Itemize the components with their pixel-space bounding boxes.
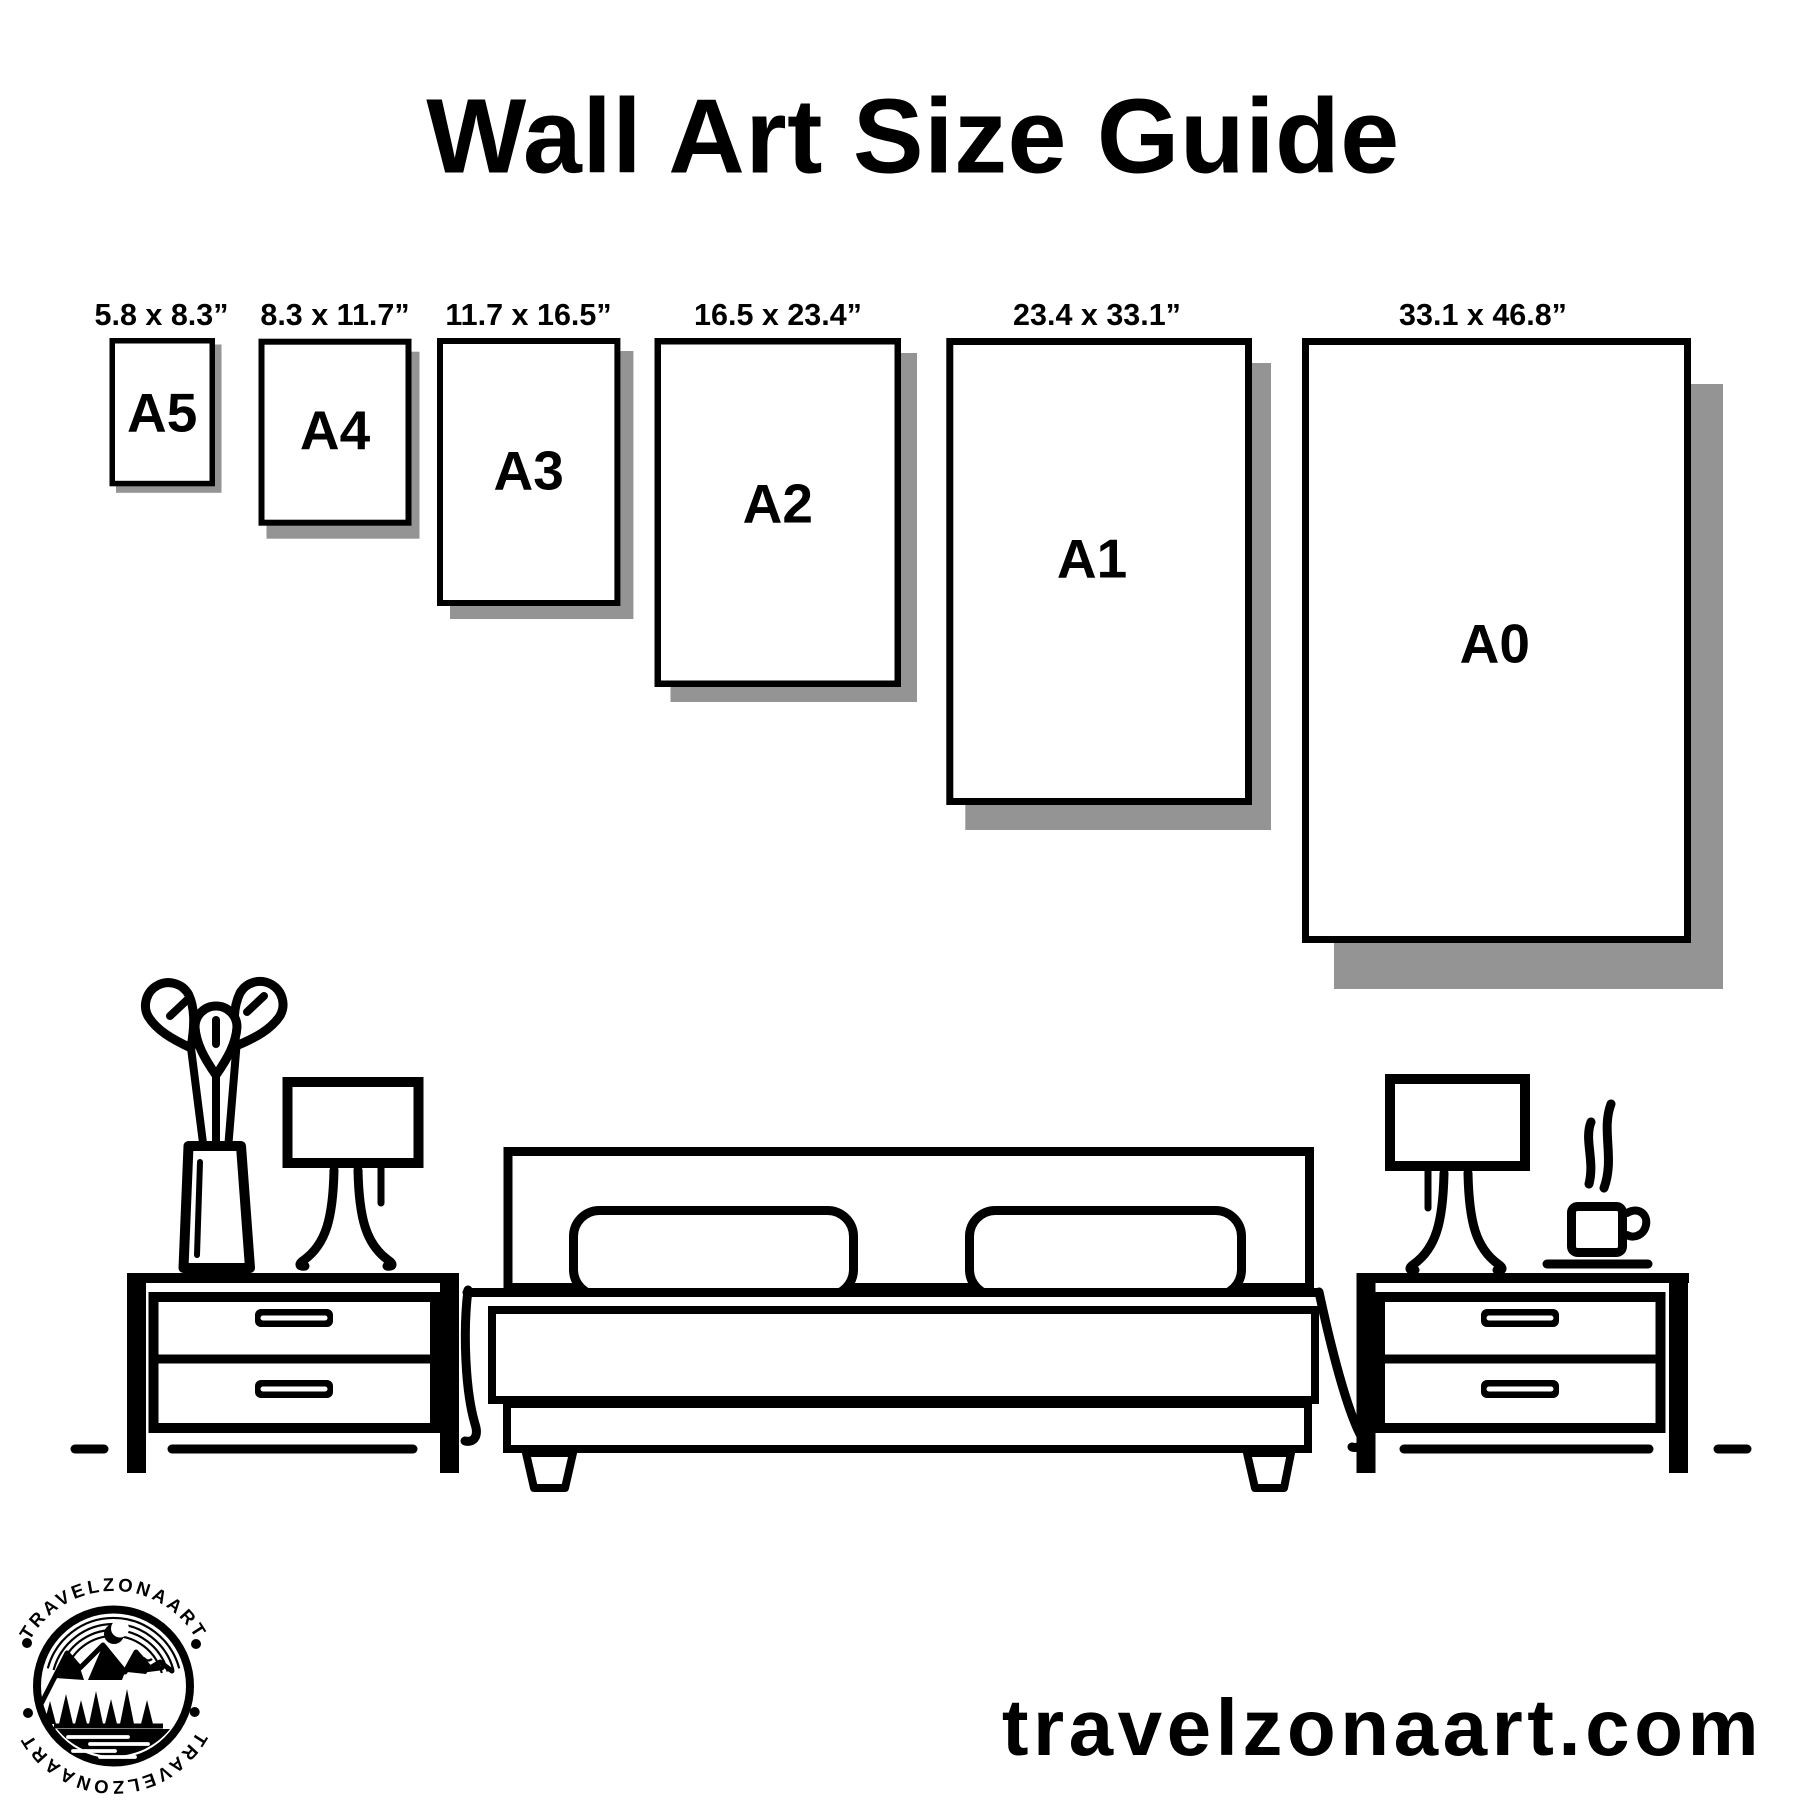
svg-text:33.1 x 46.8”: 33.1 x 46.8” [1399,298,1567,332]
svg-text:23.4 x 33.1”: 23.4 x 33.1” [1013,298,1181,332]
svg-text:5.8 x 8.3”: 5.8 x 8.3” [95,298,229,332]
svg-text:11.7 x 16.5”: 11.7 x 16.5” [445,298,611,332]
svg-text:A1: A1 [1057,528,1127,590]
svg-text:A4: A4 [300,399,371,461]
svg-text:8.3 x 11.7”: 8.3 x 11.7” [260,298,409,332]
svg-text:A2: A2 [743,473,813,535]
svg-text:A0: A0 [1460,613,1530,675]
svg-text:16.5 x 23.4”: 16.5 x 23.4” [694,298,862,332]
svg-text:travelzonaart.com: travelzonaart.com [1002,1683,1763,1772]
svg-text:A3: A3 [494,440,564,502]
svg-text:Wall Art Size Guide: Wall Art Size Guide [426,78,1399,196]
svg-text:A5: A5 [127,382,197,444]
